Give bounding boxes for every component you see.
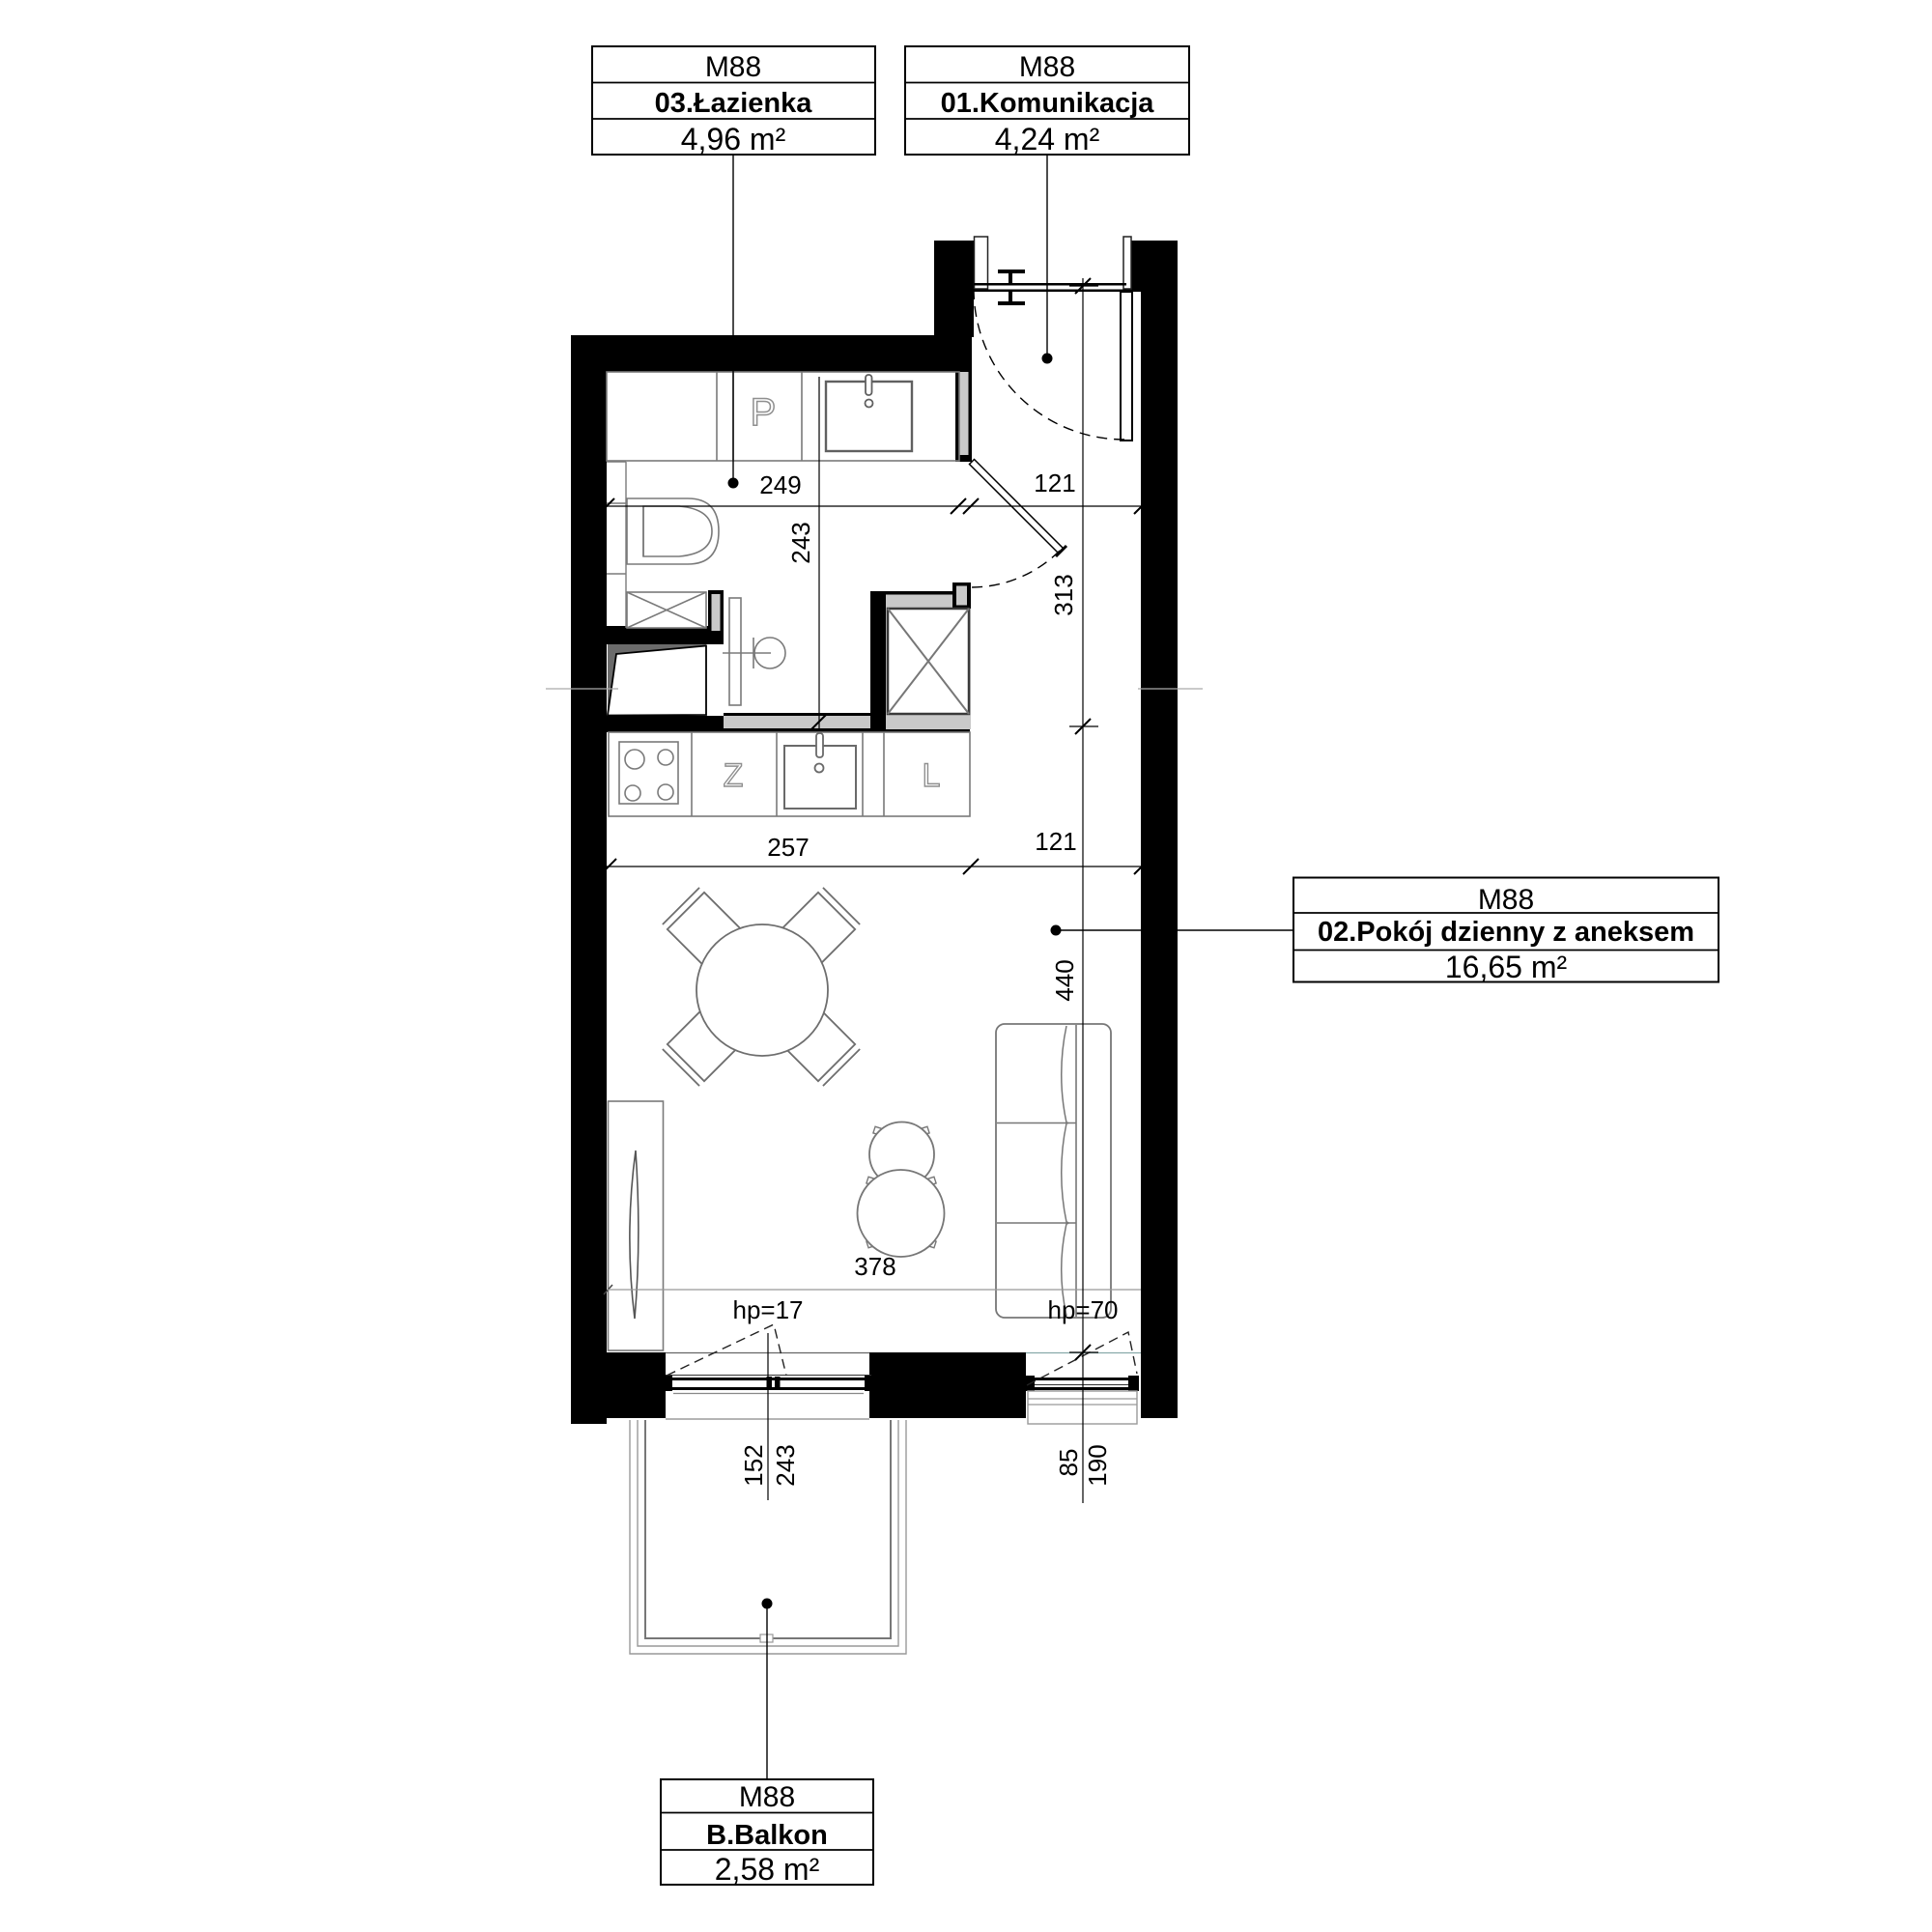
- svg-text:190: 190: [1083, 1444, 1112, 1486]
- svg-text:243: 243: [771, 1444, 800, 1486]
- svg-text:P: P: [751, 391, 777, 434]
- svg-text:152: 152: [739, 1444, 768, 1486]
- svg-text:Z: Z: [724, 757, 744, 794]
- svg-text:03.Łazienka: 03.Łazienka: [655, 88, 813, 119]
- svg-text:85: 85: [1054, 1449, 1083, 1477]
- svg-text:257: 257: [767, 833, 809, 862]
- svg-text:B.Balkon: B.Balkon: [706, 1820, 828, 1851]
- svg-text:02.Pokój dzienny z aneksem: 02.Pokój dzienny z aneksem: [1318, 917, 1694, 948]
- svg-text:243: 243: [786, 522, 815, 563]
- svg-text:4,96 m²: 4,96 m²: [681, 122, 786, 156]
- svg-text:249: 249: [759, 470, 801, 499]
- svg-text:M88: M88: [1478, 884, 1534, 916]
- svg-text:M88: M88: [705, 51, 761, 83]
- svg-text:4,24 m²: 4,24 m²: [995, 122, 1100, 156]
- svg-text:16,65 m²: 16,65 m²: [1445, 950, 1568, 984]
- svg-text:440: 440: [1050, 959, 1079, 1001]
- svg-text:01.Komunikacja: 01.Komunikacja: [941, 88, 1155, 119]
- svg-text:121: 121: [1034, 469, 1075, 497]
- svg-text:hp=17: hp=17: [732, 1295, 803, 1324]
- svg-text:2,58 m²: 2,58 m²: [715, 1852, 820, 1887]
- svg-text:121: 121: [1035, 827, 1076, 856]
- svg-text:313: 313: [1049, 574, 1078, 615]
- svg-text:M88: M88: [739, 1781, 795, 1813]
- svg-text:hp=70: hp=70: [1047, 1295, 1118, 1324]
- svg-text:M88: M88: [1019, 51, 1075, 83]
- svg-text:378: 378: [854, 1252, 895, 1281]
- svg-text:L: L: [923, 757, 941, 794]
